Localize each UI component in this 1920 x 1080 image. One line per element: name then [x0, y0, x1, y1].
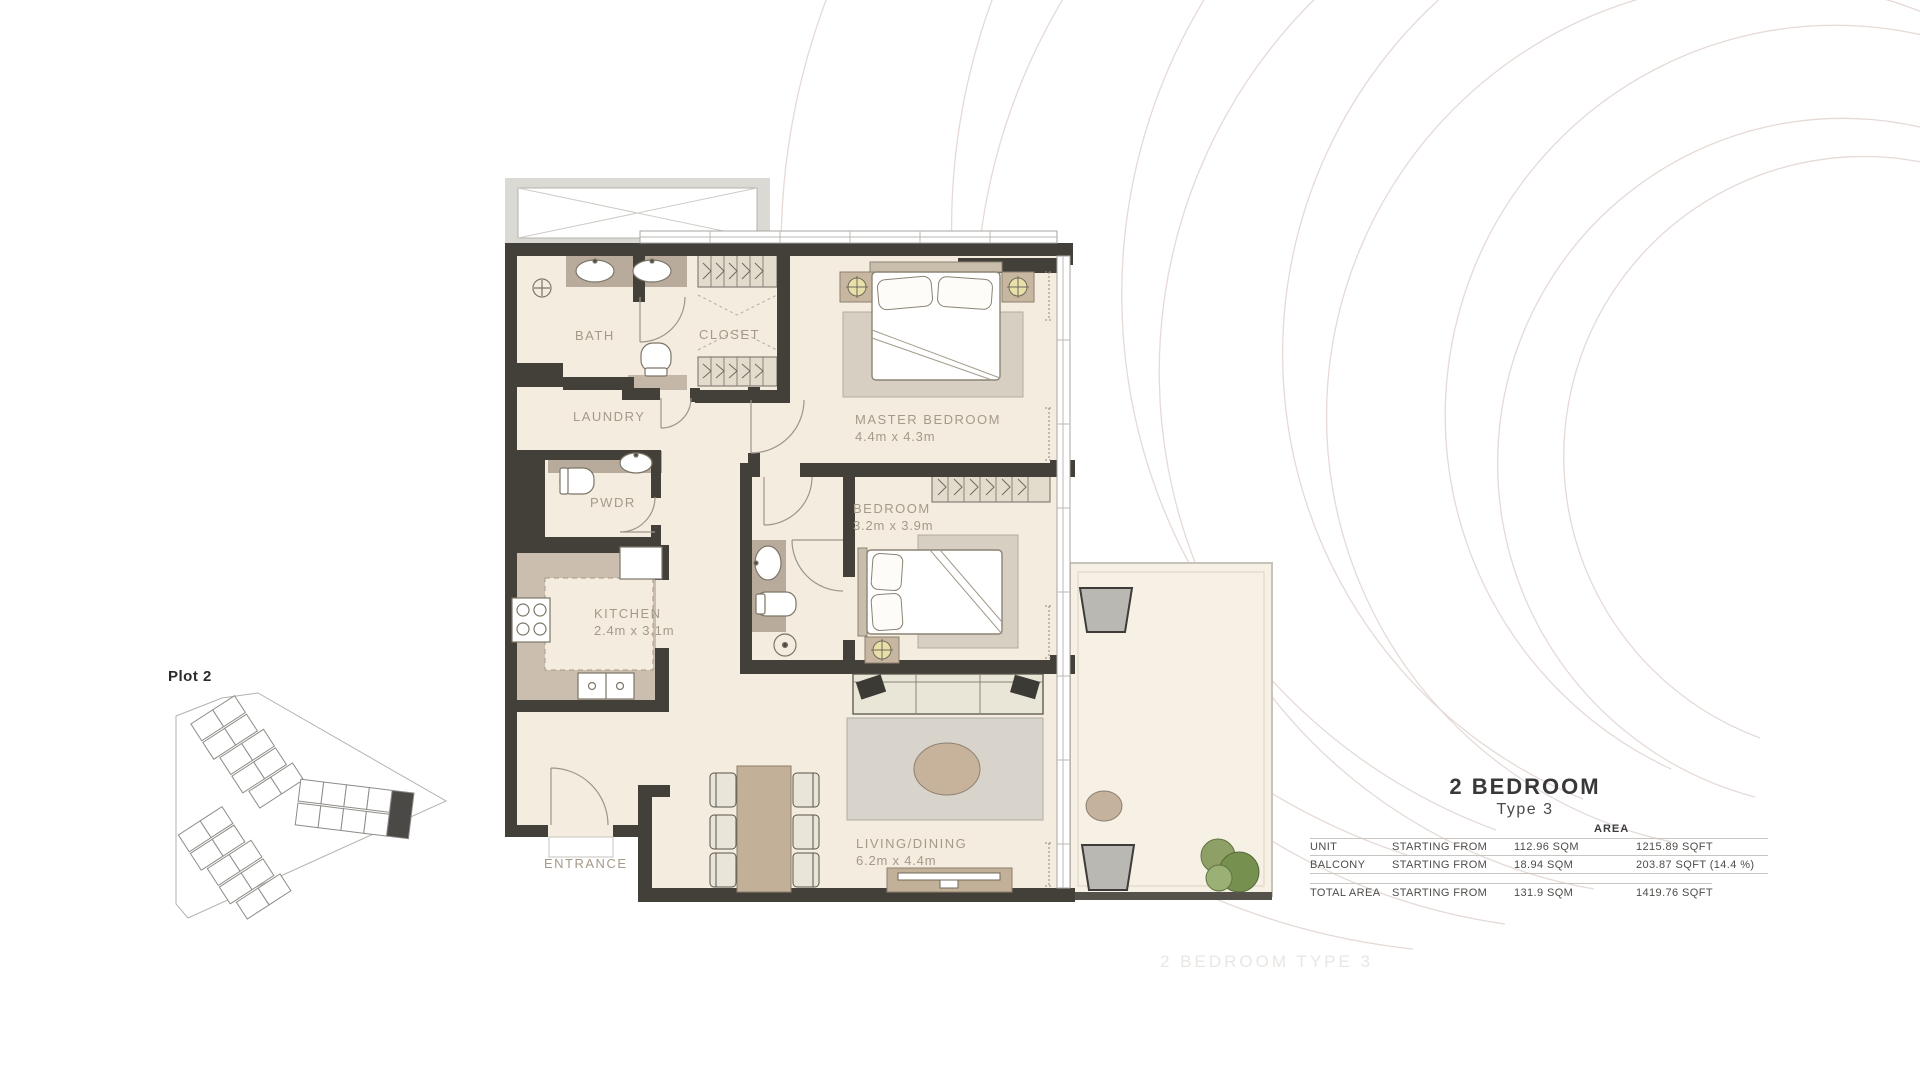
row-sqm: 131.9 SQM	[1514, 887, 1636, 899]
room-dims: 3.2m x 3.9m	[853, 518, 933, 533]
room-label-bath: BATH	[575, 328, 615, 343]
room-name: LIVING/DINING	[856, 836, 967, 851]
balcony-area	[1070, 563, 1272, 900]
row-qualifier: STARTING FROM	[1392, 841, 1514, 853]
area-row-unit: UNIT STARTING FROM 112.96 SQM 1215.89 SQ…	[1310, 841, 1778, 853]
row-sqm: 112.96 SQM	[1514, 841, 1636, 853]
room-label-pwdr: PWDR	[590, 495, 636, 510]
row-label: TOTAL AREA	[1310, 887, 1392, 899]
room-label-bedroom: BEDROOM 3.2m x 3.9m	[853, 501, 933, 533]
table-rule	[1310, 883, 1712, 884]
row-label: UNIT	[1310, 841, 1392, 853]
master-bedroom-furniture	[840, 262, 1034, 397]
row-qualifier: STARTING FROM	[1392, 887, 1514, 899]
room-label-entrance: ENTRANCE	[544, 856, 628, 871]
bed-headboard	[870, 262, 1002, 272]
room-label-laundry: LAUNDRY	[573, 409, 645, 424]
room-dims: 6.2m x 4.4m	[856, 853, 967, 868]
row-label: BALCONY	[1310, 859, 1392, 871]
table-rule	[1310, 855, 1768, 856]
table-rule	[1310, 838, 1768, 839]
room-label-kitchen: KITCHEN 2.4m x 3.1m	[594, 606, 674, 638]
room-label-master-bedroom: MASTER BEDROOM 4.4m x 4.3m	[855, 412, 1001, 444]
table-rule	[1310, 873, 1768, 874]
unit-type-title: 2 BEDROOM	[1330, 774, 1720, 800]
entrance-threshold	[549, 837, 613, 857]
room-dims: 2.4m x 3.1m	[594, 623, 674, 638]
row-qualifier: STARTING FROM	[1392, 859, 1514, 871]
floorplan-drawing	[0, 0, 1920, 1080]
balcony-chair	[1082, 845, 1134, 890]
area-column-header: AREA	[1594, 823, 1629, 835]
site-plan-graphic	[176, 689, 446, 925]
room-label-closet: CLOSET	[699, 327, 760, 342]
area-row-balcony: BALCONY STARTING FROM 18.94 SQM 203.87 S…	[1310, 859, 1778, 871]
row-sqft: 1419.76 SQFT	[1636, 887, 1778, 899]
balcony-table	[1086, 791, 1122, 821]
room-dims: 4.4m x 4.3m	[855, 429, 1001, 444]
balcony-chair	[1080, 588, 1132, 632]
coffee-table	[914, 743, 980, 795]
unit-plan-graphic	[505, 178, 1272, 902]
room-name: BEDROOM	[853, 501, 933, 516]
row-sqft: 203.87 SQFT (14.4 %)	[1636, 859, 1778, 871]
dining-table	[737, 766, 791, 892]
room-label-living-dining: LIVING/DINING 6.2m x 4.4m	[856, 836, 967, 868]
row-sqft: 1215.89 SQFT	[1636, 841, 1778, 853]
area-row-total: TOTAL AREA STARTING FROM 131.9 SQM 1419.…	[1310, 887, 1778, 899]
room-name: KITCHEN	[594, 606, 674, 621]
site-plan-title: Plot 2	[168, 668, 212, 685]
unit-type-subtitle: Type 3	[1330, 801, 1720, 819]
room-name: MASTER BEDROOM	[855, 412, 1001, 427]
bedroom-furniture	[858, 535, 1018, 663]
row-sqm: 18.94 SQM	[1514, 859, 1636, 871]
floorplan-page: Plot 2 BATH CLOSET LAUNDRY PWDR KITCHEN …	[0, 0, 1920, 1080]
watermark-text: 2 BEDROOM TYPE 3	[1160, 952, 1373, 972]
